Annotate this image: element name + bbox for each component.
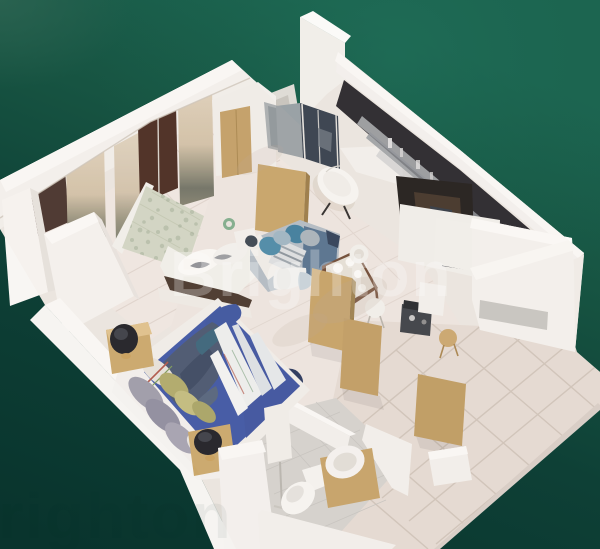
svg-text:Brighton: Brighton: [0, 480, 233, 549]
svg-text:Brighton: Brighton: [170, 238, 453, 310]
